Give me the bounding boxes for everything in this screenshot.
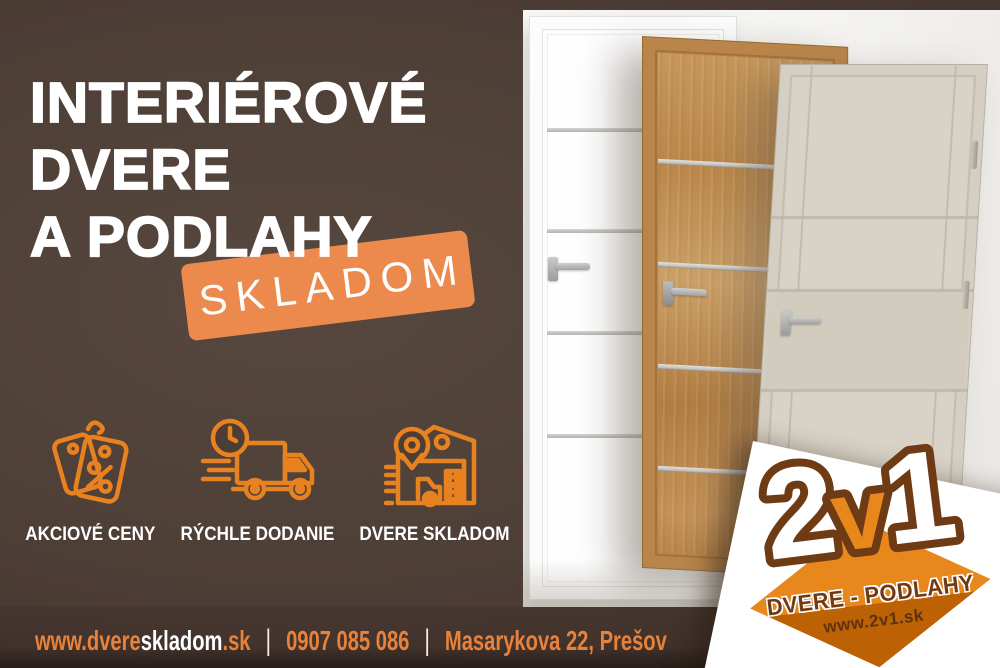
feature-fast-delivery: RÝCHLE DODANIE — [168, 398, 348, 546]
headline-line-1: INTERIÉROVÉ — [30, 70, 427, 137]
address: Masarykova 22, Prešov — [445, 625, 667, 656]
logo-2v1: 2v1 DVERE - PODLAHY www.2v1.sk — [729, 445, 1000, 668]
phone-number[interactable]: 0907 085 086 — [286, 625, 409, 656]
headline-line-2: DVERE — [30, 137, 427, 204]
door-groove — [772, 216, 978, 219]
feature-label: DVERE SKLADOM — [359, 524, 509, 546]
headline: INTERIÉROVÉ DVERE A PODLAHY — [30, 70, 427, 271]
discount-tags-icon — [38, 411, 142, 515]
website-prefix: www.dvere — [35, 625, 141, 656]
footer-separator: | — [256, 624, 280, 657]
footer-separator: | — [415, 624, 439, 657]
door-groove — [767, 289, 973, 292]
logo-main-text: 2v1 — [755, 422, 963, 587]
door-hinge — [971, 141, 979, 169]
feature-doors-in-stock: DVERE SKLADOM — [348, 398, 520, 546]
feature-label: RÝCHLE DODANIE — [181, 524, 335, 546]
door-handle-lever — [789, 317, 821, 324]
headline-line-3: A PODLAHY — [30, 204, 427, 271]
door-panel — [763, 289, 971, 389]
website-suffix: .sk — [222, 625, 250, 656]
door-handle-lever — [556, 263, 590, 270]
footer-contact-line: www.dvereskladom.sk | 0907 085 086 | Mas… — [35, 624, 667, 658]
ad-banner: INTERIÉROVÉ DVERE A PODLAHY SKLADOM — [0, 0, 1000, 668]
feature-discount-prices: AKCIOVÉ CENY — [10, 398, 170, 546]
logo-2v1-text: 2v1 — [729, 416, 990, 597]
website-link[interactable]: www.dvereskladom.sk — [35, 625, 251, 656]
door-groove — [761, 389, 967, 392]
warehouse-stock-icon — [378, 411, 490, 515]
website-highlight: skladom — [141, 625, 223, 656]
delivery-truck-icon — [197, 411, 319, 515]
feature-label: AKCIOVÉ CENY — [25, 524, 155, 546]
